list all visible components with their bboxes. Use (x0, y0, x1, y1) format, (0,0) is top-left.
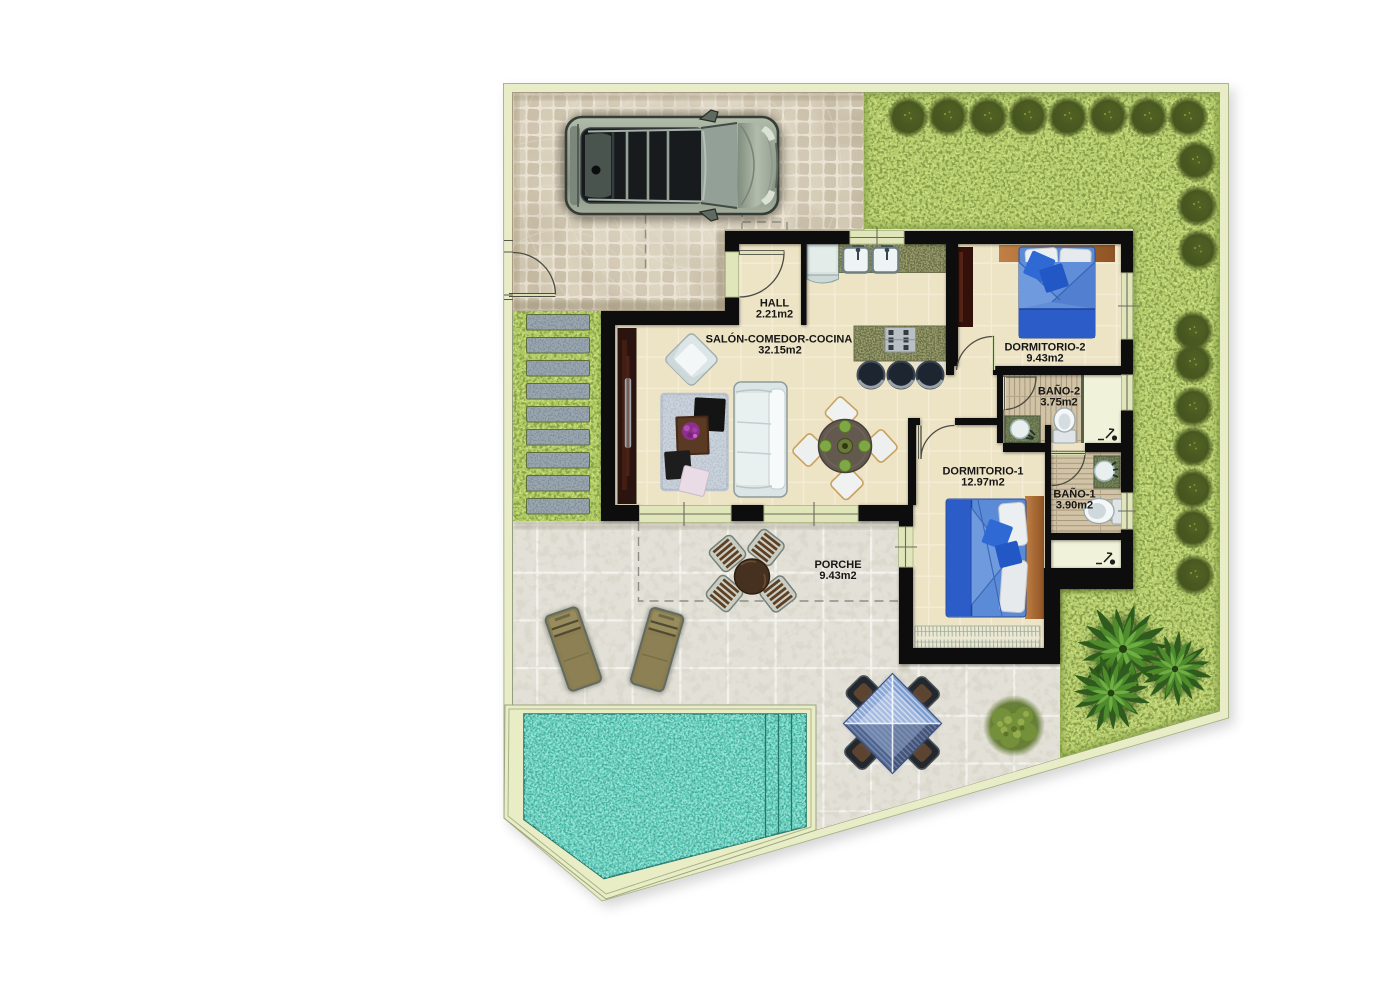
svg-text:3.90m2: 3.90m2 (1056, 500, 1093, 512)
svg-text:2.21m2: 2.21m2 (756, 309, 793, 321)
svg-text:12.97m2: 12.97m2 (961, 477, 1004, 489)
svg-text:3.75m2: 3.75m2 (1040, 397, 1077, 409)
svg-text:32.15m2: 32.15m2 (758, 345, 801, 357)
svg-text:9.43m2: 9.43m2 (1026, 353, 1063, 365)
svg-text:9.43m2: 9.43m2 (819, 570, 856, 582)
